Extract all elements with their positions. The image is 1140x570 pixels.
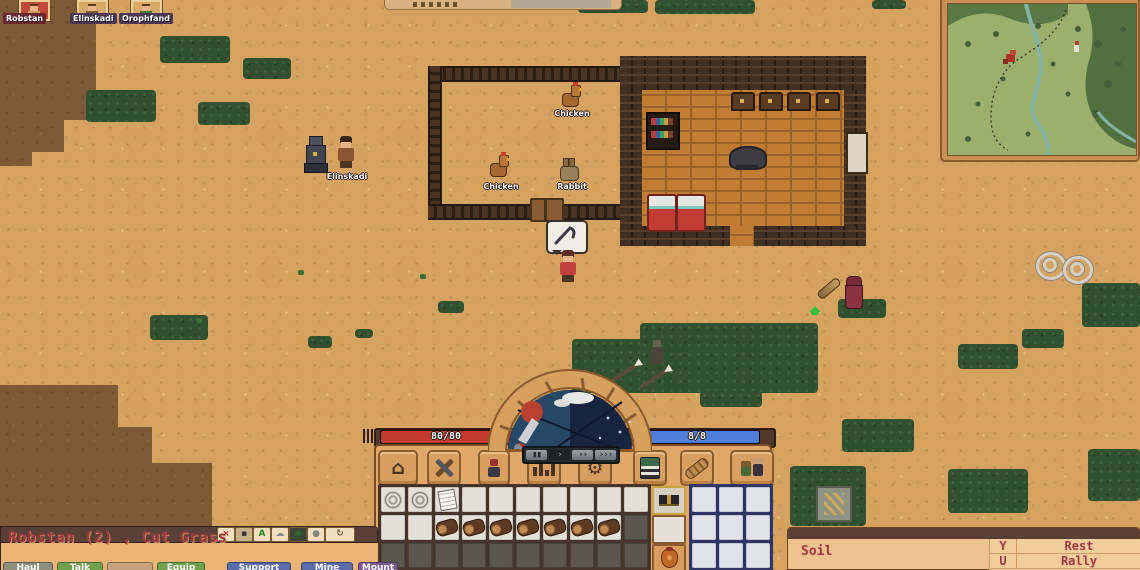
build-menu-button[interactable]: ⌂ [378, 450, 418, 486]
fence [428, 66, 442, 216]
command-tab[interactable] [107, 562, 153, 570]
inventory-slot-rope[interactable] [381, 487, 405, 512]
inventory-slot[interactable] [543, 487, 567, 512]
minimap[interactable] [940, 0, 1140, 162]
crafting-button[interactable] [427, 450, 461, 486]
selection-title: Robstan (2) , Cut Grass [8, 528, 227, 546]
portrait-button[interactable]: ▪ [235, 527, 253, 542]
storage-chest[interactable] [787, 92, 811, 111]
bookshelf[interactable] [646, 112, 680, 150]
inventory-slot[interactable] [746, 515, 770, 540]
pen-gate[interactable] [530, 198, 564, 222]
grass-patch [160, 36, 230, 63]
keybind-table: Y Rest U Rally [989, 539, 1140, 570]
grass-patch [86, 90, 156, 122]
equipment-slot-head[interactable] [652, 486, 686, 515]
inventory-slot[interactable] [516, 543, 540, 568]
unit-label: Chicken [483, 182, 518, 191]
log-icon [542, 517, 567, 537]
inventory-slot[interactable] [624, 515, 648, 540]
fence [562, 204, 622, 220]
log-icon [569, 517, 594, 537]
club-item[interactable] [816, 277, 842, 301]
auto-button[interactable]: A [253, 527, 271, 542]
rock-icon-button[interactable]: ● [307, 527, 325, 542]
top-cropped-panel [384, 0, 622, 10]
dirt-terrain [0, 427, 152, 463]
book-icon [640, 457, 660, 479]
command-tab[interactable]: Equip [157, 562, 205, 570]
unit-robed-figure[interactable] [843, 276, 863, 310]
grass-tuft [298, 270, 304, 275]
rope-coil-item[interactable] [1036, 252, 1066, 280]
unit-label: Chicken [554, 109, 589, 118]
inventory-slot[interactable] [516, 487, 540, 512]
equipment-slot-body[interactable] [652, 515, 686, 544]
inventory-slot-log[interactable] [435, 515, 459, 540]
energy-bar: 8/8 [634, 430, 760, 444]
grass-patch [640, 323, 818, 393]
dirt-terrain [0, 385, 118, 427]
keybind-key: U [990, 554, 1017, 568]
inventory-slot[interactable] [692, 515, 716, 540]
inventory-main-grid [378, 484, 651, 570]
storage-chest[interactable] [759, 92, 783, 111]
inventory-slot-log[interactable] [543, 515, 567, 540]
inventory-slot[interactable] [719, 487, 743, 512]
grass-patch [243, 58, 291, 79]
inventory-slot[interactable] [692, 487, 716, 512]
inventory-slot[interactable] [719, 543, 743, 568]
medical-button[interactable] [680, 450, 714, 486]
character-icon [487, 459, 501, 477]
cloud-icon-button[interactable]: ☁ [271, 527, 289, 542]
grass-patch [355, 329, 373, 338]
building-wall [620, 90, 642, 246]
inventory-slot[interactable] [570, 487, 594, 512]
fence [428, 204, 532, 220]
inventory-slot-log[interactable] [462, 515, 486, 540]
log-icon [461, 517, 486, 537]
unit-chicken[interactable] [560, 84, 582, 108]
log-icon [488, 517, 513, 537]
squad-icon [740, 459, 764, 477]
grass-patch [872, 0, 906, 9]
unit-elinskadi[interactable] [334, 136, 358, 170]
building-wall [754, 226, 866, 246]
inventory-slot-log[interactable] [570, 515, 594, 540]
storage-chest[interactable] [731, 92, 755, 111]
inventory-slot[interactable] [489, 543, 513, 568]
statue[interactable] [302, 136, 328, 174]
grass-patch [1088, 449, 1140, 501]
energy-bar-value: 8/8 [635, 431, 759, 443]
bandage-icon [683, 456, 710, 481]
keybind-row-rally[interactable]: U Rally [990, 554, 1140, 569]
building-door[interactable] [846, 132, 868, 174]
fast-forward-button[interactable]: ›› [572, 450, 593, 460]
grass-patch [1022, 329, 1064, 348]
unit-label: Elinskadi [327, 172, 368, 181]
inventory-slot[interactable] [746, 487, 770, 512]
bed[interactable] [676, 194, 706, 232]
log-icon [434, 517, 459, 537]
log-icon [515, 517, 540, 537]
inventory-slot[interactable] [624, 487, 648, 512]
scroll-icon [437, 488, 457, 511]
inventory-slot-log[interactable] [516, 515, 540, 540]
anvil[interactable] [729, 146, 767, 170]
inventory-slot[interactable] [543, 543, 567, 568]
inventory-slot-log[interactable] [597, 515, 621, 540]
info-panel: Soil Y Rest U Rally [787, 527, 1140, 570]
inventory-slot[interactable] [408, 543, 432, 568]
inventory-slot[interactable] [624, 543, 648, 568]
pot-icon [661, 549, 678, 568]
party-name: Elinskadi [70, 13, 117, 24]
inventory-slot-rope[interactable] [408, 487, 432, 512]
sickle-icon [548, 222, 582, 248]
keybind-row-rest[interactable]: Y Rest [990, 539, 1140, 554]
command-tab[interactable]: Talk [57, 562, 103, 570]
inventory-slot[interactable] [462, 487, 486, 512]
speed-controls: ▮▮ › ›› ››› [522, 446, 620, 464]
info-title: Soil [801, 544, 832, 559]
building-doorway-floor [730, 226, 754, 246]
command-tab[interactable]: Haul [3, 562, 53, 570]
command-tab[interactable]: Support [227, 562, 291, 570]
inventory-slot[interactable] [462, 543, 486, 568]
inventory-slot[interactable] [435, 543, 459, 568]
grass-tuft [420, 274, 426, 279]
gem-item[interactable] [810, 306, 820, 315]
keybind-action: Rest [1017, 539, 1140, 553]
keybind-action: Rally [1017, 554, 1140, 568]
bed[interactable] [647, 194, 677, 232]
goggles-icon [659, 495, 679, 506]
refresh-icon-button[interactable]: ↻ [325, 527, 355, 542]
party-name: Orophfand [119, 13, 173, 24]
inventory-slot[interactable] [719, 515, 743, 540]
inventory-slot[interactable] [597, 487, 621, 512]
inventory-slot-scroll[interactable] [435, 487, 459, 512]
grass-patch [198, 102, 250, 125]
grass-patch [948, 469, 1028, 513]
log-icon [596, 517, 621, 537]
inventory-slot[interactable] [489, 487, 513, 512]
grass-tuft [196, 318, 202, 323]
inventory-slot[interactable] [570, 543, 594, 568]
job-speech-bubble [546, 220, 588, 254]
inventory-side-grid [689, 484, 773, 570]
squad-button[interactable] [730, 450, 774, 486]
inventory-slot[interactable] [746, 543, 770, 568]
unit-robstan[interactable] [556, 250, 580, 284]
storage-chest[interactable] [816, 92, 840, 111]
command-tab[interactable]: Mount [358, 562, 398, 570]
grass-patch [958, 344, 1018, 369]
grass-patch [308, 336, 332, 348]
grass-patch [438, 301, 464, 313]
unit-chicken[interactable] [488, 154, 510, 178]
unit-worker[interactable] [648, 340, 666, 368]
rope-icon [411, 491, 429, 509]
fence [428, 66, 622, 82]
inventory-slot[interactable] [381, 515, 405, 540]
game-viewport: Chicken Chicken Rabbit Elinskadi [0, 0, 1140, 570]
play-button[interactable]: › [549, 450, 570, 460]
party-name: Robstan [3, 13, 46, 24]
dirt-terrain [0, 152, 32, 166]
hud-grip [363, 429, 373, 443]
grass-patch [842, 419, 914, 452]
pause-button[interactable]: ▮▮ [526, 450, 547, 460]
crossed-tools-icon [434, 458, 454, 478]
keybind-key: Y [990, 539, 1017, 553]
grass-patch [700, 391, 762, 407]
selection-panel: × ▪ A ☁ ◉ ● ↻ Robstan (2) , Cut Grass Ha… [0, 525, 378, 570]
build-icon: ⌂ [391, 459, 405, 478]
dirt-terrain [0, 120, 64, 152]
info-panel-header [788, 528, 1139, 539]
command-tab[interactable]: Mine [301, 562, 353, 570]
rope-coil-item[interactable] [1063, 256, 1093, 284]
equipment-slot-accessory[interactable] [652, 544, 686, 570]
grass-patch [1082, 283, 1140, 327]
day-night-clock [488, 366, 652, 456]
inventory-slot[interactable] [597, 543, 621, 568]
top-panel-marks [413, 2, 459, 7]
inventory-slot-log[interactable] [489, 515, 513, 540]
unit-label: Rabbit [557, 182, 587, 191]
unit-rabbit[interactable] [558, 158, 580, 180]
fastest-forward-button[interactable]: ››› [595, 450, 616, 460]
camera-icon-button[interactable]: ◉ [289, 527, 307, 542]
inventory-slot[interactable] [692, 543, 716, 568]
inventory-slot[interactable] [408, 515, 432, 540]
grass-patch [655, 0, 755, 14]
held-item-icon[interactable] [816, 486, 852, 522]
building-wall [620, 56, 866, 90]
top-panel-segment [511, 0, 611, 8]
rope-icon [384, 491, 402, 509]
